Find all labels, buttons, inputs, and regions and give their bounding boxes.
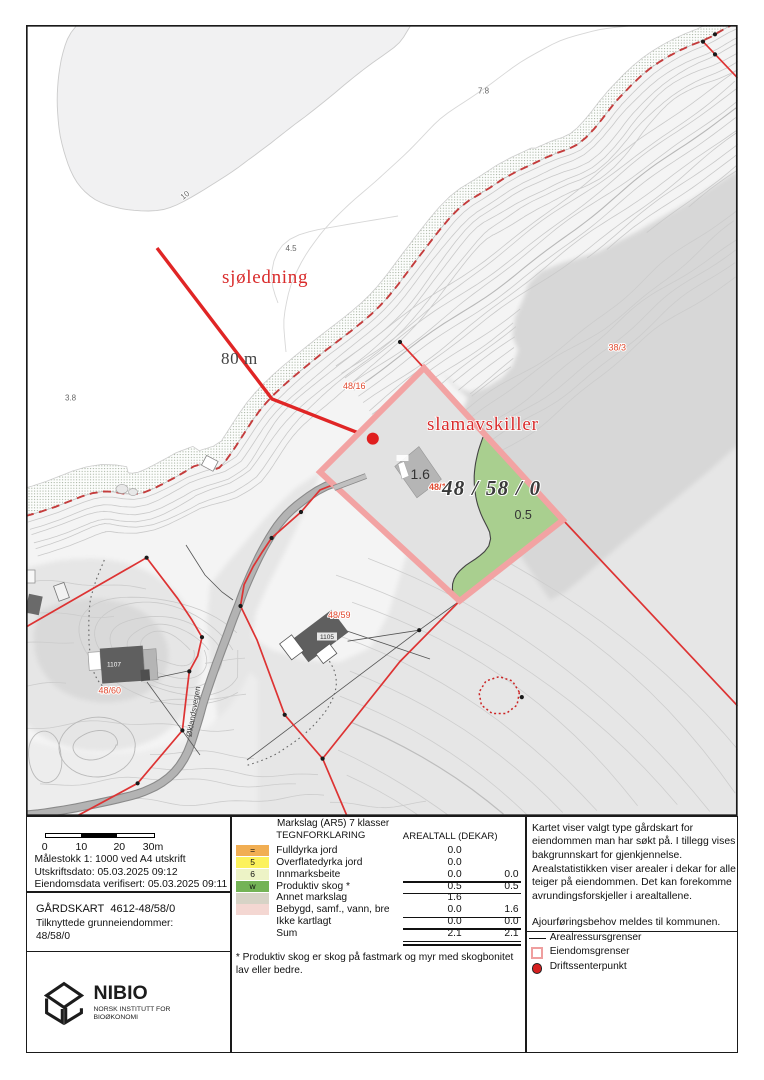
svg-text:1105: 1105 [320, 634, 334, 641]
svg-text:1107: 1107 [107, 662, 121, 669]
svg-text:48/16: 48/16 [343, 381, 366, 391]
svg-text:slamavskiller: slamavskiller [427, 414, 539, 435]
svg-text:38/3: 38/3 [609, 343, 627, 353]
svg-text:7.8: 7.8 [478, 87, 490, 96]
svg-text:sjøledning: sjøledning [222, 267, 308, 288]
svg-text:3.8: 3.8 [65, 394, 77, 403]
svg-text:80 m: 80 m [221, 349, 258, 368]
svg-text:48 / 58 / 0: 48 / 58 / 0 [441, 476, 541, 500]
svg-text:1.6: 1.6 [411, 466, 431, 482]
svg-text:48/59: 48/59 [328, 610, 351, 620]
svg-text:48/60: 48/60 [99, 686, 122, 696]
svg-text:4.5: 4.5 [286, 244, 298, 253]
svg-text:0.5: 0.5 [515, 508, 532, 522]
